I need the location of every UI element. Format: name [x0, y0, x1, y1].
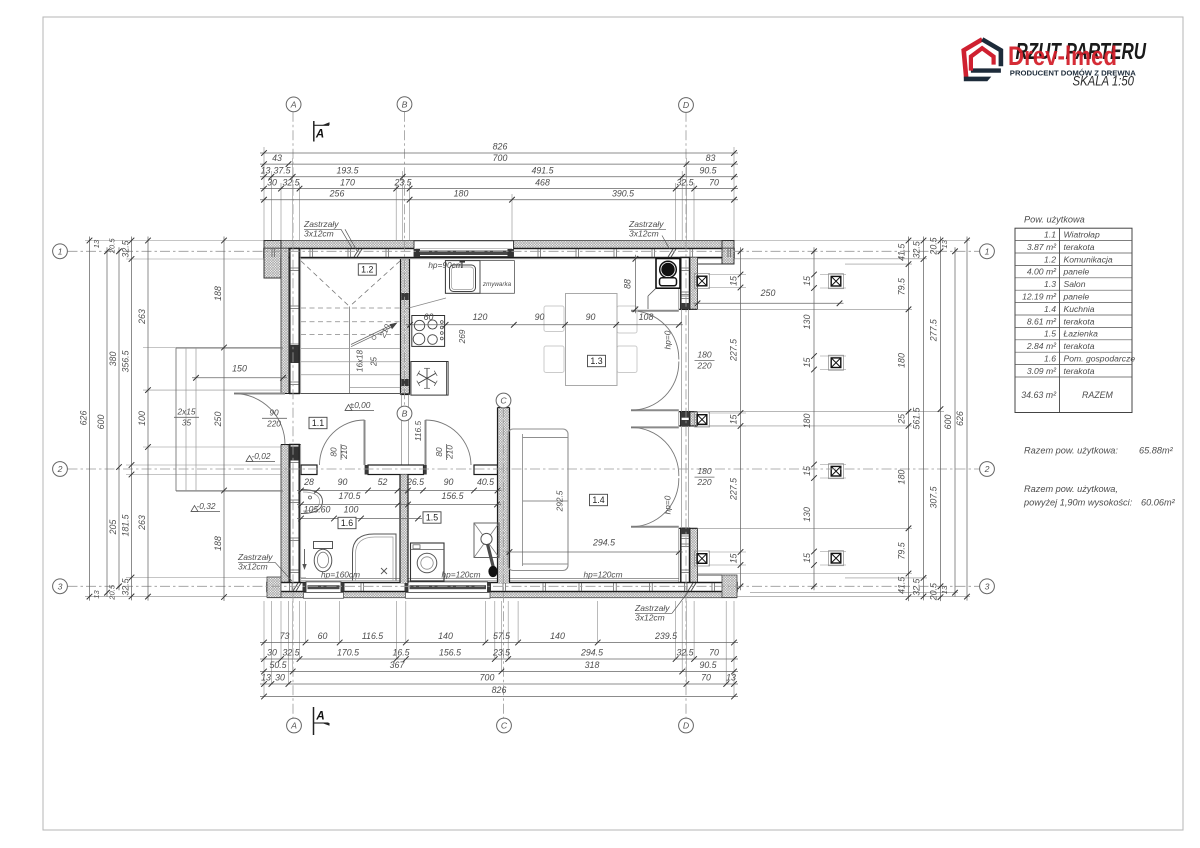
svg-text:1.5: 1.5 — [426, 513, 438, 523]
svg-text:Zastrzały: Zastrzały — [634, 603, 670, 613]
svg-text:70: 70 — [709, 648, 719, 658]
svg-text:Komunikacja: Komunikacja — [1064, 254, 1113, 264]
svg-text:C: C — [500, 396, 507, 406]
svg-text:269: 269 — [457, 329, 467, 344]
svg-text:150: 150 — [232, 363, 247, 373]
svg-text:hp=90cm: hp=90cm — [428, 260, 462, 270]
svg-text:Zastrzały: Zastrzały — [303, 219, 339, 229]
svg-text:600: 600 — [96, 415, 106, 430]
svg-text:60.06m²: 60.06m² — [1141, 498, 1176, 508]
svg-text:32.5: 32.5 — [282, 177, 299, 187]
svg-text:15: 15 — [729, 276, 739, 286]
svg-text:3: 3 — [58, 581, 63, 591]
svg-text:180: 180 — [697, 466, 711, 476]
svg-text:250: 250 — [213, 412, 223, 428]
svg-text:Wiatrołap: Wiatrołap — [1064, 230, 1100, 240]
svg-text:181.5: 181.5 — [120, 514, 130, 536]
svg-text:panele: panele — [1063, 267, 1090, 277]
svg-text:13: 13 — [92, 239, 101, 248]
svg-text:263: 263 — [137, 309, 147, 325]
svg-text:188: 188 — [213, 286, 223, 301]
svg-text:32.5: 32.5 — [676, 648, 693, 658]
svg-text:hp=160cm: hp=160cm — [321, 570, 360, 580]
svg-text:Łazienka: Łazienka — [1064, 329, 1099, 339]
svg-text:Pom. gospodarcze: Pom. gospodarcze — [1064, 354, 1136, 364]
svg-text:294.5: 294.5 — [592, 538, 615, 548]
svg-text:23.5: 23.5 — [492, 648, 510, 658]
svg-text:panele: panele — [1063, 292, 1090, 302]
svg-text:C: C — [501, 721, 508, 731]
svg-text:40.5: 40.5 — [477, 477, 494, 487]
svg-text:1.3: 1.3 — [590, 356, 602, 366]
svg-text:13: 13 — [726, 673, 736, 683]
svg-text:52: 52 — [378, 477, 388, 487]
svg-text:294.5: 294.5 — [580, 648, 603, 658]
svg-text:Razem pow. użytkowa:: Razem pow. użytkowa: — [1024, 446, 1118, 456]
svg-text:140: 140 — [550, 631, 565, 641]
svg-text:15: 15 — [802, 466, 812, 476]
svg-text:205: 205 — [108, 520, 118, 536]
svg-text:227.5: 227.5 — [729, 339, 739, 362]
svg-text:B: B — [402, 409, 408, 419]
svg-text:90: 90 — [338, 477, 348, 487]
svg-text:13: 13 — [261, 673, 271, 683]
svg-text:626: 626 — [955, 411, 965, 426]
svg-text:-0,32: -0,32 — [197, 501, 216, 511]
svg-text:32.5: 32.5 — [282, 648, 299, 658]
svg-text:100: 100 — [137, 411, 147, 426]
svg-text:356.5: 356.5 — [120, 350, 130, 372]
svg-text:20.5: 20.5 — [108, 584, 117, 601]
svg-text:60: 60 — [424, 312, 434, 322]
svg-text:35: 35 — [182, 418, 192, 428]
svg-text:90: 90 — [586, 312, 596, 322]
svg-text:13: 13 — [261, 166, 271, 176]
svg-text:powyżej 1,90m wysokości:: powyżej 1,90m wysokości: — [1023, 498, 1133, 508]
svg-text:3x12cm: 3x12cm — [629, 229, 659, 239]
svg-text:105.60: 105.60 — [304, 505, 331, 515]
svg-text:227.5: 227.5 — [729, 478, 739, 501]
svg-text:Salon: Salon — [1064, 279, 1086, 289]
svg-text:180: 180 — [802, 414, 812, 429]
svg-text:1: 1 — [58, 246, 63, 256]
svg-text:41.5: 41.5 — [897, 577, 907, 594]
svg-text:180: 180 — [697, 349, 711, 359]
svg-text:263: 263 — [137, 515, 147, 531]
svg-text:170: 170 — [340, 177, 355, 187]
svg-text:Razem pow. użytkowa,: Razem pow. użytkowa, — [1024, 484, 1118, 494]
svg-text:13: 13 — [940, 239, 949, 248]
svg-text:50.5: 50.5 — [269, 660, 286, 670]
svg-text:Drev-lmed: Drev-lmed — [1008, 41, 1117, 71]
svg-text:15: 15 — [802, 553, 812, 563]
svg-text:8.61 m²: 8.61 m² — [1027, 316, 1057, 326]
svg-text:2x15: 2x15 — [177, 407, 196, 417]
svg-text:561.5: 561.5 — [912, 407, 922, 429]
svg-text:120: 120 — [473, 312, 488, 322]
svg-text:70: 70 — [709, 177, 719, 187]
svg-text:Kuchnia: Kuchnia — [1064, 304, 1095, 314]
svg-text:32.5: 32.5 — [676, 177, 693, 187]
svg-text:terakota: terakota — [1064, 366, 1095, 376]
svg-text:292.5: 292.5 — [555, 490, 565, 512]
svg-text:170.5: 170.5 — [338, 491, 360, 501]
svg-text:210: 210 — [445, 445, 455, 460]
svg-text:16.5: 16.5 — [392, 648, 409, 658]
svg-text:626: 626 — [78, 411, 88, 426]
svg-text:Pow. użytkowa: Pow. użytkowa — [1024, 215, 1085, 225]
svg-text:250: 250 — [760, 288, 776, 298]
svg-text:140: 140 — [438, 631, 453, 641]
svg-text:3: 3 — [985, 581, 990, 591]
svg-text:156.5: 156.5 — [441, 491, 463, 501]
svg-text:130: 130 — [802, 507, 812, 522]
svg-text:1.4: 1.4 — [592, 495, 604, 505]
svg-text:390.5: 390.5 — [612, 188, 634, 198]
svg-text:700: 700 — [480, 673, 495, 683]
svg-text:terakota: terakota — [1064, 341, 1095, 351]
svg-text:A: A — [290, 100, 297, 110]
svg-text:318: 318 — [585, 660, 600, 670]
svg-text:hp=120cm: hp=120cm — [442, 570, 481, 580]
svg-text:468: 468 — [535, 177, 550, 187]
svg-text:307.5: 307.5 — [929, 486, 939, 508]
svg-text:277.5: 277.5 — [929, 319, 939, 342]
svg-text:26.5: 26.5 — [406, 477, 424, 487]
svg-text:15: 15 — [729, 415, 739, 425]
svg-text:73: 73 — [280, 631, 290, 641]
svg-text:16x18: 16x18 — [356, 349, 365, 372]
svg-text:13: 13 — [940, 585, 949, 594]
svg-text:80: 80 — [434, 447, 444, 457]
svg-text:220: 220 — [696, 477, 711, 487]
svg-text:32.5: 32.5 — [120, 578, 130, 595]
svg-text:D: D — [683, 721, 689, 731]
svg-text:30: 30 — [275, 673, 285, 683]
svg-text:Zastrzały: Zastrzały — [628, 219, 664, 229]
svg-text:12.19 m²: 12.19 m² — [1022, 292, 1057, 302]
svg-text:116.5: 116.5 — [413, 421, 423, 442]
svg-text:2: 2 — [984, 464, 990, 474]
svg-text:188: 188 — [213, 536, 223, 551]
svg-text:D: D — [683, 100, 689, 110]
svg-text:15: 15 — [802, 358, 812, 368]
svg-text:1.6: 1.6 — [341, 518, 353, 528]
svg-text:15: 15 — [729, 554, 739, 564]
svg-text:32.5: 32.5 — [120, 240, 130, 257]
svg-text:239.5: 239.5 — [654, 631, 677, 641]
svg-text:2.84 m²: 2.84 m² — [1026, 341, 1057, 351]
svg-text:1.5: 1.5 — [1044, 329, 1056, 339]
svg-text:3.87 m²: 3.87 m² — [1027, 242, 1057, 252]
svg-text:4.00 m²: 4.00 m² — [1027, 267, 1057, 277]
svg-text:B: B — [402, 99, 408, 109]
svg-text:60: 60 — [318, 631, 328, 641]
svg-text:30: 30 — [267, 648, 277, 658]
svg-text:A: A — [315, 711, 324, 723]
svg-text:1.1: 1.1 — [312, 418, 324, 428]
svg-text:32.5: 32.5 — [912, 579, 922, 596]
svg-text:180: 180 — [897, 470, 907, 485]
svg-text:20.5: 20.5 — [929, 583, 939, 601]
svg-text:2: 2 — [57, 464, 63, 474]
svg-text:100: 100 — [344, 505, 359, 515]
svg-text:3x12cm: 3x12cm — [304, 229, 334, 239]
svg-text:hp=120cm: hp=120cm — [584, 570, 623, 580]
svg-text:hp=0: hp=0 — [663, 330, 673, 349]
svg-text:80: 80 — [329, 447, 339, 457]
svg-text:70: 70 — [701, 673, 711, 683]
svg-text:90.5: 90.5 — [699, 660, 716, 670]
svg-text:380: 380 — [108, 352, 118, 367]
svg-text:65.88m²: 65.88m² — [1139, 446, 1174, 456]
svg-text:90: 90 — [535, 312, 545, 322]
svg-text:PRODUCENT DOMÓW Z DREWNA: PRODUCENT DOMÓW Z DREWNA — [1010, 69, 1137, 78]
svg-text:220: 220 — [696, 361, 711, 371]
svg-text:3.09 m²: 3.09 m² — [1027, 366, 1057, 376]
svg-text:1.6: 1.6 — [1044, 354, 1056, 364]
svg-text:88: 88 — [623, 279, 633, 289]
svg-text:193.5: 193.5 — [336, 166, 358, 176]
svg-text:terakota: terakota — [1064, 242, 1095, 252]
svg-text:57.5: 57.5 — [493, 631, 510, 641]
svg-text:37.5: 37.5 — [273, 166, 290, 176]
svg-text:90: 90 — [269, 408, 279, 418]
svg-text:28: 28 — [303, 477, 314, 487]
svg-text:79.5: 79.5 — [897, 542, 907, 559]
svg-text:1.4: 1.4 — [1044, 304, 1056, 314]
svg-text:3x12cm: 3x12cm — [238, 562, 268, 572]
svg-text:220: 220 — [266, 419, 281, 429]
svg-text:90: 90 — [444, 477, 454, 487]
svg-text:1.1: 1.1 — [1044, 230, 1056, 240]
svg-text:A: A — [315, 129, 324, 141]
svg-text:RAZEM: RAZEM — [1082, 390, 1113, 400]
svg-text:256: 256 — [329, 188, 345, 198]
svg-text:43: 43 — [272, 153, 282, 163]
svg-text:25: 25 — [897, 414, 907, 425]
svg-text:-0,02: -0,02 — [252, 451, 271, 461]
svg-text:180: 180 — [897, 353, 907, 368]
svg-text:83: 83 — [706, 153, 716, 163]
svg-text:180: 180 — [454, 188, 469, 198]
svg-text:20.5: 20.5 — [108, 238, 117, 255]
svg-text:367: 367 — [390, 660, 406, 670]
svg-text:terakota: terakota — [1064, 316, 1095, 326]
svg-text:23.5: 23.5 — [393, 177, 411, 187]
svg-text:826: 826 — [493, 142, 508, 152]
svg-text:32.5: 32.5 — [912, 241, 922, 258]
svg-text:41.5: 41.5 — [897, 244, 907, 261]
svg-text:1.3: 1.3 — [1044, 279, 1056, 289]
svg-text:1: 1 — [985, 246, 990, 256]
svg-text:79.5: 79.5 — [897, 278, 907, 295]
svg-text:20.5: 20.5 — [929, 237, 939, 255]
svg-text:116.5: 116.5 — [362, 631, 383, 641]
svg-text:30: 30 — [267, 177, 277, 187]
svg-text:zmywarka: zmywarka — [482, 281, 512, 288]
svg-text:25: 25 — [370, 357, 379, 368]
svg-text:491.5: 491.5 — [531, 166, 553, 176]
svg-text:3x12cm: 3x12cm — [635, 613, 665, 623]
svg-text:34.63 m²: 34.63 m² — [1021, 390, 1057, 400]
svg-text:700: 700 — [493, 153, 508, 163]
svg-text:A: A — [290, 721, 297, 731]
svg-text:210: 210 — [339, 445, 349, 460]
svg-text:13: 13 — [92, 590, 101, 599]
svg-text:90.5: 90.5 — [699, 166, 716, 176]
svg-text:hp=0: hp=0 — [663, 495, 673, 514]
svg-text:130: 130 — [802, 315, 812, 330]
svg-text:108: 108 — [639, 312, 654, 322]
svg-text:1.2: 1.2 — [361, 265, 373, 275]
svg-text:±0,00: ±0,00 — [350, 400, 371, 410]
svg-text:600: 600 — [943, 415, 953, 430]
svg-text:1.2: 1.2 — [1044, 254, 1056, 264]
svg-text:170.5: 170.5 — [337, 648, 359, 658]
svg-text:15: 15 — [802, 276, 812, 286]
svg-text:Zastrzały: Zastrzały — [237, 552, 273, 562]
svg-text:156.5: 156.5 — [439, 648, 461, 658]
svg-text:826: 826 — [492, 685, 507, 695]
